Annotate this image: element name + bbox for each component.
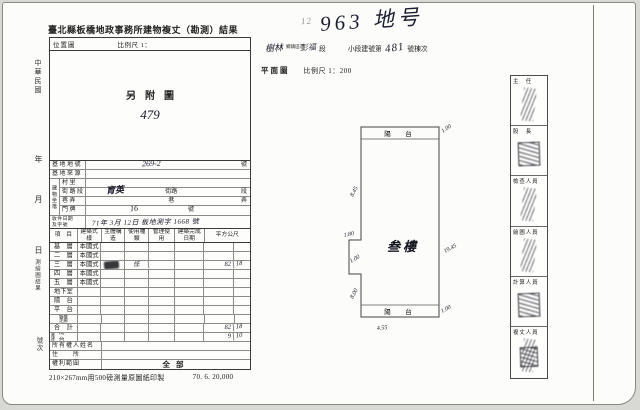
location-map-label: 位置圖 (53, 39, 76, 49)
margin-era-label: 中華民國 (33, 59, 43, 95)
balcony-top-label: 陽 台 (384, 129, 416, 138)
signature-scribble (520, 238, 537, 272)
floor-plan-scale: 比例尺 1：200 (304, 66, 352, 76)
street-unit-label: 段 (241, 188, 247, 196)
seal-stamp (518, 142, 541, 167)
street-handwritten-value: 育英 (106, 186, 124, 195)
site-source-row: 基地來源 (50, 170, 250, 179)
door-unit-label: 號 (188, 206, 194, 214)
location-map-header: 位置圖 比例尺 1： (50, 38, 250, 51)
township-label: 鄉鎮區市 (286, 45, 297, 50)
table-row: 二 層 本國式 (50, 252, 250, 261)
table-row-total: 合 計 8218 (50, 324, 250, 333)
lane-unit-label: 弄 (241, 197, 247, 205)
signature-column: 主 任 股 長 檢查人員 繪圖人員 計算人員 複丈人員 (510, 75, 548, 379)
sign-cell-director: 主 任 (511, 76, 547, 126)
dim-right-side: 19.45 (443, 242, 458, 255)
building-number-handwritten: 481 (384, 40, 405, 55)
subsection-label: 小段建號第 (348, 43, 382, 53)
site-source-label: 基地來源 (50, 170, 86, 178)
rights-scope-value: 全部 (102, 360, 250, 369)
dim-notch-left: 1.00 (349, 254, 361, 264)
building-location-group: 建物坐落 村里 街路段 育英 街路 段 巷弄 巷 (50, 179, 250, 216)
print-note: 210×267mm用500磅測量原圖紙印製 (49, 373, 165, 383)
building-address-line: 樹林 鄉鎮區市 彭福 段 小段建號第 481 號棟次 (265, 41, 428, 54)
village-row: 村里 (60, 179, 250, 188)
street-mid-label: 街路 (165, 188, 177, 196)
margin-year-label: 年 (33, 155, 44, 165)
table-row: 騎樓走廊 (50, 315, 250, 324)
dim-left-lower: 8.00 (349, 288, 359, 300)
section-handwritten: 彭福 (300, 42, 317, 54)
building-location-label: 建物坐落 (50, 179, 60, 215)
address-row: 住 所 (50, 351, 250, 360)
floor-plan-title-row: 平面圖 比例尺 1：200 (261, 65, 352, 76)
receipt-handwritten-value: 71年 3月 12日 板地測字 1668 號 (86, 215, 250, 230)
location-map-scale-label: 比例尺 1： (118, 39, 152, 49)
lane-row: 巷弄 巷 弄 (60, 197, 250, 206)
dim-bottom-right: 1.00 (440, 305, 452, 315)
lane-mid-label: 巷 (168, 197, 174, 205)
dim-left-upper: 8.45 (349, 185, 360, 198)
site-lot-row: 基地地號 269-2 號 (50, 161, 250, 170)
door-row: 門牌 16 號 (60, 206, 250, 215)
survey-form: 位置圖 比例尺 1： 另附圖 479 基地地號 269-2 號 基地來源 建物坐… (49, 37, 251, 370)
dim-bottom-width: 4.55 (376, 324, 387, 332)
floor-plan-outline (349, 127, 439, 317)
site-lot-label: 基地地號 (50, 161, 86, 169)
map-handwritten-number: 479 (50, 107, 250, 123)
street-row: 街路段 育英 街路 段 (60, 188, 250, 197)
ink-smudge (104, 261, 120, 269)
seal-stamp (520, 347, 539, 368)
site-lot-unit: 號 (241, 161, 247, 169)
handwritten-prefix: 12 (301, 15, 313, 26)
dim-notch-top: 1.80 (343, 231, 355, 239)
use-type-handwritten: 住 (125, 260, 149, 270)
scanned-form-page: 臺北縣板橋地政事務所建物複丈（勘測）結果 中華民國 年 月 日 測繪圖結果 號次… (2, 2, 636, 405)
table-row: 地下室 (50, 288, 250, 297)
room-label: 叁樓 (387, 239, 419, 254)
table-row: 平 台 (50, 306, 250, 315)
sign-cell-draftsman: 繪圖人員 (511, 227, 547, 277)
table-row-annex-balcony: 附屬建物 陽 台 910 (50, 333, 250, 342)
balcony-bottom-label: 陽 台 (384, 307, 416, 316)
map-note: 另附圖 (50, 51, 250, 102)
sign-cell-calculator: 計算人員 (511, 277, 547, 327)
sign-cell-inspector: 檢查人員 (511, 176, 547, 226)
floor-table-header: 項 目 建築式樣 主體構造 使用種類 管理使用 建築完成日期 平方公尺 (50, 229, 250, 243)
margin-result-label: 測繪圖結果 (33, 259, 41, 292)
sign-cell-surveyor: 複丈人員 (511, 327, 547, 377)
margin-month-label: 月 (33, 195, 44, 205)
floor-plan-drawing: 陽 台 陽 台 叁樓 1.00 8.45 1.80 1.00 19.45 8.0… (341, 115, 467, 337)
township-handwritten: 樹林 (265, 40, 284, 54)
table-row: 陽 台 (50, 297, 250, 306)
table-row: 四 層 本國式 (50, 270, 250, 279)
table-row: 五 層 本國式 (50, 279, 250, 288)
margin-number-label: 號次 (33, 337, 43, 352)
door-handwritten-value: 16 (130, 205, 139, 214)
sign-cell-section-chief: 股 長 (511, 126, 547, 176)
paper-edge-line (593, 5, 594, 401)
margin-day-label: 日 (33, 246, 44, 256)
table-row-third-floor: 三 層 本國式 住 8218 (50, 261, 250, 270)
rights-scope-row: 權利範圍 全部 (50, 360, 250, 369)
print-footer: 210×267mm用500磅測量原圖紙印製 70. 6. 20,000 (49, 373, 233, 383)
document-title: 臺北縣板橋地政事務所建物複丈（勘測）結果 (48, 23, 263, 36)
location-map-area: 另附圖 479 (50, 51, 250, 161)
owner-name-row: 所有權人姓名 (50, 342, 250, 351)
dim-top-right: 1.00 (441, 124, 453, 135)
signature-scribble (520, 87, 537, 121)
site-lot-value: 269-2 (142, 160, 161, 169)
seal-stamp (518, 292, 541, 317)
receipt-row: 收件日期 及字號 71年 3月 12日 板地測字 1668 號 (50, 216, 250, 229)
print-code: 70. 6. 20,000 (193, 373, 234, 383)
building-number-unit: 號棟次 (407, 43, 427, 53)
section-unit-label: 段 (319, 43, 326, 53)
table-row: 基 層 本國式 (50, 243, 250, 252)
floor-plan-label: 平面圖 (261, 65, 290, 76)
handwritten-lot-title: 12963 地号 (300, 1, 424, 39)
signature-scribble (520, 188, 537, 222)
